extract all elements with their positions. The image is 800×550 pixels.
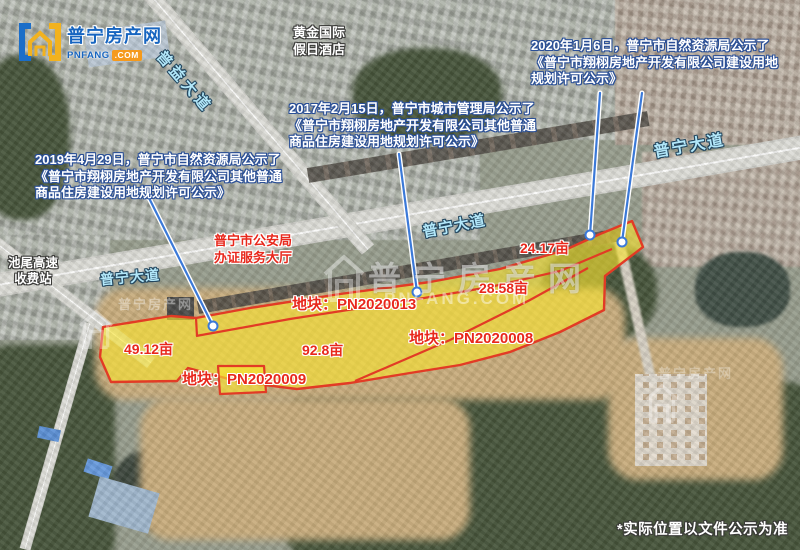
- poi-hotel-line2: 假日酒店: [293, 42, 345, 59]
- map-canvas: 普宁房产网 PNFANG.COM 普宁房产网 普宁房产网 普宁房产网 PNFAN…: [0, 0, 800, 550]
- plot-code-pn2020008: 地块：PN2020008: [409, 327, 533, 348]
- notice-2017-line2: 《普宁市翔栩房地产开发有限公司其他普通: [289, 118, 536, 135]
- poi-police-line2: 办证服务大厅: [214, 250, 292, 267]
- notice-2017: 2017年2月15日，普宁市城市管理局公示了 《普宁市翔栩房地产开发有限公司其他…: [289, 101, 536, 151]
- logo-domain: PNFANG: [67, 50, 110, 61]
- poi-tollgate-line2: 收费站: [8, 272, 58, 288]
- notice-2020: 2020年1月6日，普宁市自然资源局公示了 《普宁市翔栩房地产开发有限公司建设用…: [531, 38, 778, 88]
- notice-2019: 2019年4月29日，普宁市自然资源局公示了 《普宁市翔栩房地产开发有限公司其他…: [35, 152, 282, 202]
- disclaimer-note: *实际位置以文件公示为准: [617, 518, 788, 539]
- plot-area-24: 24.17亩: [520, 238, 569, 258]
- plot-code-pn2020009: 地块：PN2020009: [182, 368, 306, 389]
- logo-domain-suffix: .COM: [112, 50, 142, 61]
- poi-police-line1: 普宁市公安局: [214, 233, 292, 250]
- poi-hotel-line1: 黄金国际: [293, 25, 345, 42]
- watermark-title-left: 普宁房产网: [118, 294, 193, 313]
- notice-2017-line3: 商品住房建设用地规划许可公示》: [289, 134, 536, 151]
- house-watermark-icon-left: [76, 305, 116, 353]
- notice-2019-line2: 《普宁市翔栩房地产开发有限公司其他普通: [35, 169, 282, 186]
- plot-area-92: 92.8亩: [302, 340, 343, 360]
- watermark-title-right: 普宁房产网: [658, 363, 733, 382]
- notice-2020-line1: 2020年1月6日，普宁市自然资源局公示了: [531, 38, 778, 55]
- notice-2019-line3: 商品住房建设用地规划许可公示》: [35, 185, 282, 202]
- notice-2020-line3: 规划许可公示》: [531, 71, 778, 88]
- logo-title: 普宁房产网: [67, 22, 162, 48]
- house-watermark-icon-right: [642, 380, 682, 426]
- notice-2020-line2: 《普宁市翔栩房地产开发有限公司建设用地: [531, 55, 778, 72]
- notice-2017-line1: 2017年2月15日，普宁市城市管理局公示了: [289, 101, 536, 118]
- poi-police-hall: 普宁市公安局 办证服务大厅: [214, 233, 292, 266]
- house-logo-icon: [18, 22, 62, 62]
- poi-hotel: 黄金国际 假日酒店: [293, 25, 345, 58]
- plot-area-28: 28.58亩: [479, 278, 528, 298]
- plot-internal-line-notch: [196, 318, 197, 336]
- notice-2019-line1: 2019年4月29日，普宁市自然资源局公示了: [35, 152, 282, 169]
- plot-area-49: 49.12亩: [124, 339, 173, 359]
- poi-tollgate-line1: 池尾高速: [8, 256, 58, 272]
- plot-code-pn2020013: 地块：PN2020013: [292, 293, 416, 314]
- site-logo: 普宁房产网 PNFANG .COM: [18, 22, 162, 62]
- poi-tollgate: 池尾高速 收费站: [8, 256, 58, 287]
